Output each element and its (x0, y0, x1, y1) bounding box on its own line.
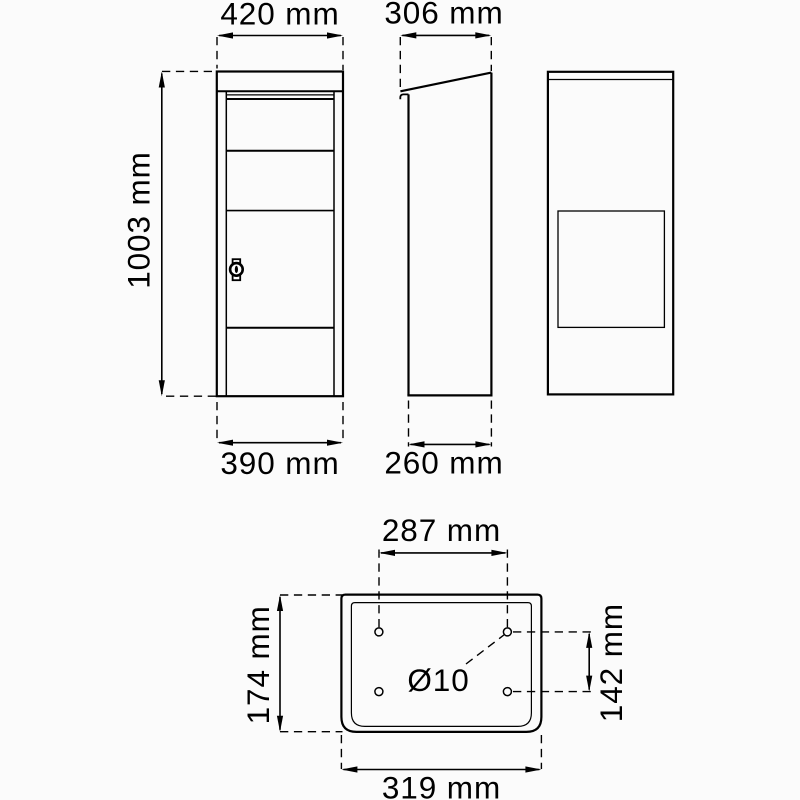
svg-text:319 mm: 319 mm (382, 770, 501, 800)
svg-text:142 mm: 142 mm (593, 603, 629, 722)
svg-text:420 mm: 420 mm (220, 0, 339, 32)
svg-text:174 mm: 174 mm (240, 605, 276, 724)
svg-text:Ø10: Ø10 (407, 662, 469, 698)
svg-text:306 mm: 306 mm (384, 0, 503, 31)
svg-text:390 mm: 390 mm (220, 445, 339, 481)
svg-text:260 mm: 260 mm (384, 445, 503, 481)
svg-text:287 mm: 287 mm (382, 512, 501, 548)
svg-text:1003 mm: 1003 mm (121, 151, 157, 289)
